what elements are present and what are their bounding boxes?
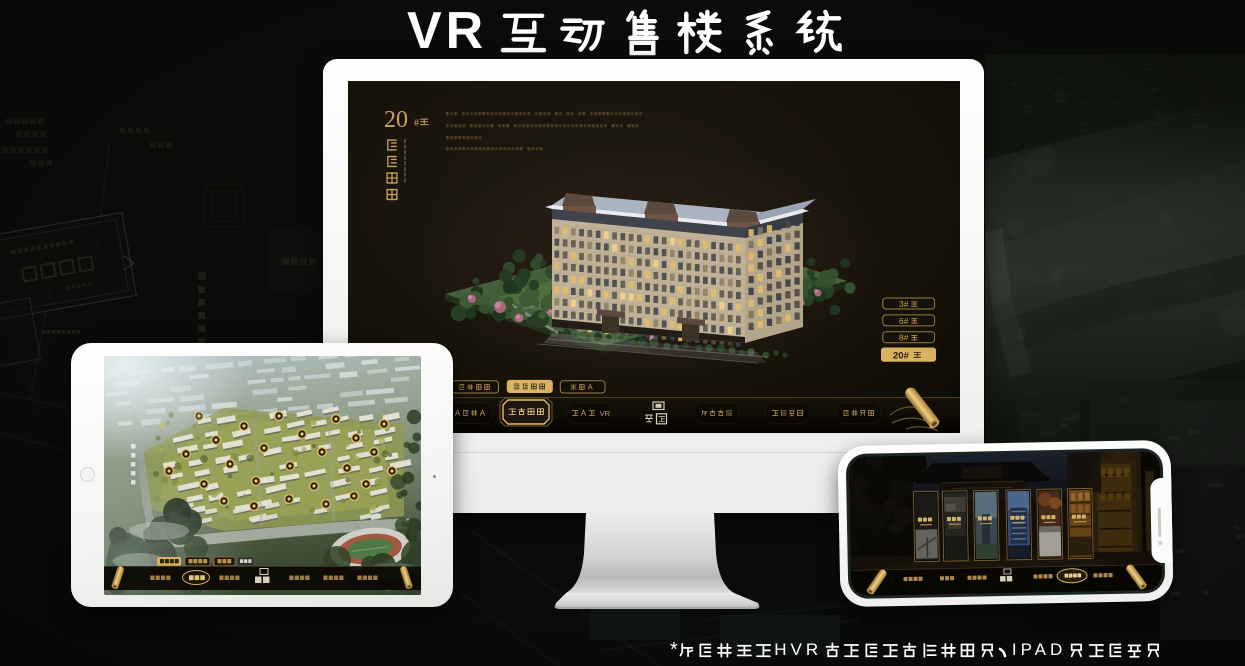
svg-text:VR: VR xyxy=(600,409,611,418)
svg-text:#: # xyxy=(414,118,419,129)
svg-text:20: 20 xyxy=(384,107,408,133)
svg-text:20#: 20# xyxy=(893,351,910,362)
svg-text:3#: 3# xyxy=(899,299,909,309)
svg-text:6#: 6# xyxy=(899,316,909,326)
svg-text:8#: 8# xyxy=(899,333,909,343)
